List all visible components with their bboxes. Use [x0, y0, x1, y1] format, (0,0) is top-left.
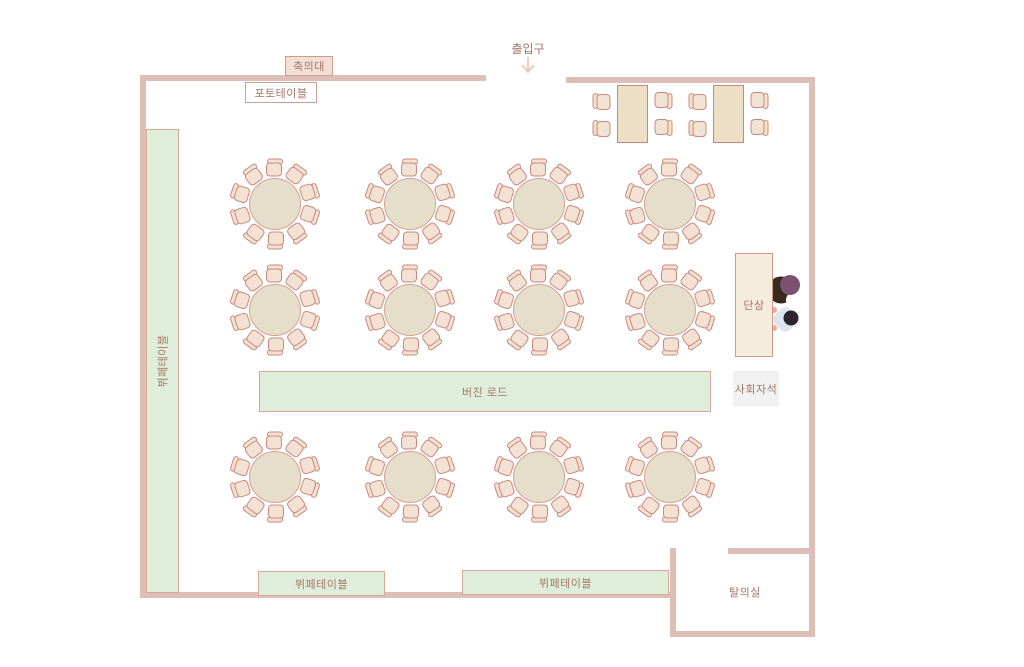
chair-seat: [663, 338, 679, 352]
chair-seat: [655, 92, 669, 108]
chair: [661, 265, 679, 284]
gift-desk-label: 축의대: [293, 58, 325, 74]
buffet-2-box: 뷔페테이블: [462, 570, 669, 595]
chair-seat: [693, 94, 707, 110]
chair: [401, 337, 419, 356]
chair: [530, 432, 548, 451]
virgin-road-box: 버진 로드: [259, 371, 711, 412]
chair: [661, 504, 679, 523]
chair: [401, 432, 419, 451]
photo-table-label: 포토테이블: [254, 85, 307, 101]
chair: [689, 92, 708, 110]
chair-seat: [530, 436, 546, 450]
chair: [266, 231, 284, 250]
chair: [750, 92, 769, 110]
mc-seat-box: 사회자석: [733, 371, 779, 406]
dressing-room-box: 탈의실: [715, 584, 775, 599]
chair: [561, 477, 585, 500]
side-buffet-box: 뷔페테이블: [146, 129, 179, 593]
chair-seat: [663, 505, 679, 519]
chair: [432, 477, 456, 500]
chair-seat: [266, 269, 282, 283]
podium-box: 단상: [735, 253, 773, 357]
chair: [266, 265, 284, 284]
dressing-room-label: 탈의실: [729, 584, 761, 600]
chair: [654, 119, 673, 137]
chair-seat: [401, 269, 417, 283]
chair: [432, 204, 456, 227]
chair: [561, 310, 585, 333]
chair: [401, 265, 419, 284]
side-buffet-label: 뷔페테이블: [155, 334, 171, 387]
chair-seat: [597, 94, 611, 110]
chair: [297, 287, 321, 310]
chair: [530, 265, 548, 284]
chair: [297, 310, 321, 333]
chair: [530, 159, 548, 178]
chair: [432, 181, 456, 204]
chair: [297, 477, 321, 500]
chair-seat: [532, 338, 548, 352]
chair-seat: [403, 338, 419, 352]
chair-seat: [532, 232, 548, 246]
chair: [297, 204, 321, 227]
chair: [297, 181, 321, 204]
mc-seat-label: 사회자석: [735, 381, 777, 397]
chair-seat: [661, 436, 677, 450]
chair: [530, 337, 548, 356]
entrance-down-arrow-icon: [516, 56, 540, 78]
chair-seat: [597, 121, 611, 137]
chair: [661, 337, 679, 356]
rect-table: [617, 85, 648, 143]
wedding-hall-floorplan: 출입구 축의대포토테이블뷔페테이블버진 로드뷔페테이블뷔페테이블단상사회자석탈의…: [0, 0, 1024, 667]
chair-seat: [663, 232, 679, 246]
chair: [593, 119, 612, 137]
chair-seat: [751, 92, 765, 108]
buffet-1-label: 뷔페테이블: [295, 576, 348, 592]
chair: [692, 454, 716, 477]
chair: [401, 231, 419, 250]
chair-seat: [661, 269, 677, 283]
chair-seat: [268, 232, 284, 246]
chair: [561, 181, 585, 204]
wall-segment: [728, 548, 815, 554]
podium-label: 단상: [743, 297, 764, 313]
chair: [401, 504, 419, 523]
chair: [266, 159, 284, 178]
chair: [266, 432, 284, 451]
chair-seat: [655, 119, 669, 135]
chair-seat: [693, 121, 707, 137]
gift-desk-box: 축의대: [285, 56, 333, 76]
chair: [401, 159, 419, 178]
rect-table: [713, 85, 744, 143]
chair-seat: [266, 436, 282, 450]
wall-segment: [670, 631, 815, 637]
wall-segment: [566, 77, 815, 83]
buffet-2-label: 뷔페테이블: [539, 575, 592, 591]
photo-table-box: 포토테이블: [245, 82, 317, 103]
chair: [266, 504, 284, 523]
chair: [561, 204, 585, 227]
chair-seat: [403, 232, 419, 246]
chair: [689, 119, 708, 137]
chair: [661, 231, 679, 250]
chair-seat: [268, 505, 284, 519]
chair-seat: [751, 119, 765, 135]
chair: [692, 181, 716, 204]
chair: [432, 454, 456, 477]
entrance-label: 출입구: [511, 40, 544, 57]
chair: [530, 231, 548, 250]
buffet-1-box: 뷔페테이블: [258, 571, 385, 596]
chair: [432, 287, 456, 310]
chair-seat: [403, 505, 419, 519]
chair: [692, 477, 716, 500]
chair: [593, 92, 612, 110]
person-bride-icon: [771, 305, 801, 335]
chair-seat: [661, 163, 677, 177]
chair: [661, 159, 679, 178]
chair-seat: [266, 163, 282, 177]
chair: [266, 337, 284, 356]
chair: [661, 432, 679, 451]
wall-segment: [670, 548, 676, 637]
virgin-road-label: 버진 로드: [462, 384, 508, 400]
chair: [432, 310, 456, 333]
chair: [654, 92, 673, 110]
chair-seat: [532, 505, 548, 519]
chair: [530, 504, 548, 523]
chair-seat: [530, 163, 546, 177]
chair: [692, 287, 716, 310]
chair-seat: [268, 338, 284, 352]
chair: [297, 454, 321, 477]
chair: [750, 119, 769, 137]
chair: [692, 310, 716, 333]
chair: [692, 204, 716, 227]
chair-seat: [530, 269, 546, 283]
chair: [561, 287, 585, 310]
chair-seat: [401, 163, 417, 177]
chair: [561, 454, 585, 477]
chair-seat: [401, 436, 417, 450]
